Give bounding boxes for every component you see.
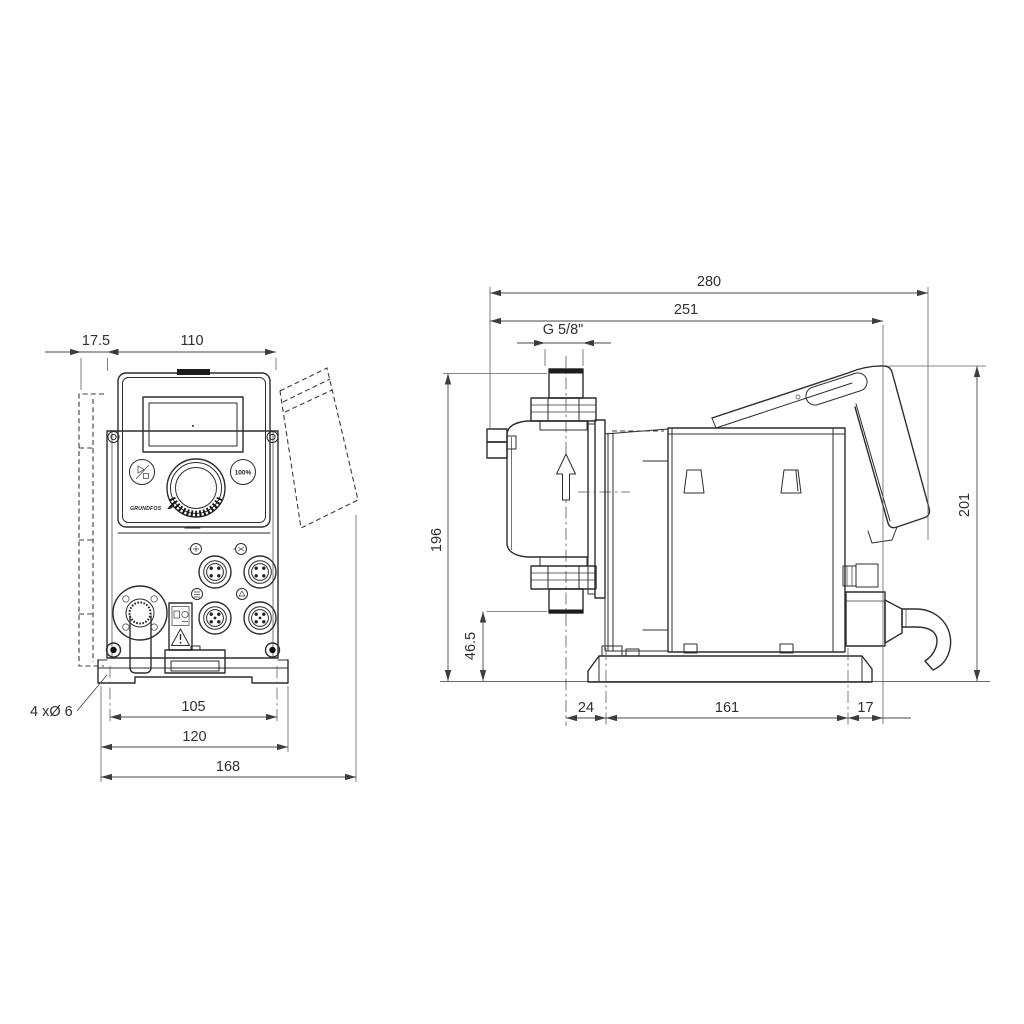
m12-connector xyxy=(199,602,231,634)
dim-rear-offset: 17 xyxy=(857,700,873,716)
dim-depth-to-plate: 251 xyxy=(674,302,698,318)
dim-total-width: 168 xyxy=(216,759,240,775)
display-cursor xyxy=(192,425,194,427)
m12-connector xyxy=(244,602,276,634)
page-background xyxy=(0,0,1024,1024)
brand-text: GRUNDFOS xyxy=(130,506,162,512)
dim-wall-offset: 17.5 xyxy=(82,333,110,349)
dim-plate-width: 120 xyxy=(182,729,206,745)
dim-hole-spacing: 105 xyxy=(181,699,205,715)
label-mounting-holes: 4 xØ 6 xyxy=(30,704,73,720)
technical-drawing: 100% GRUNDFOS xyxy=(0,0,1024,1024)
dim-width: 110 xyxy=(180,333,203,349)
dim-front-offset: 24 xyxy=(578,700,594,716)
dim-valve-height: 46.5 xyxy=(463,632,479,660)
dim-rear-height: 201 xyxy=(957,493,973,517)
top-tab xyxy=(177,369,210,375)
dim-height: 196 xyxy=(429,528,445,552)
dim-total-depth: 280 xyxy=(697,274,721,290)
dim-foot-length: 161 xyxy=(715,700,739,716)
hundred-percent-label: 100% xyxy=(235,470,252,477)
label-thread-size: G 5/8" xyxy=(543,322,584,338)
